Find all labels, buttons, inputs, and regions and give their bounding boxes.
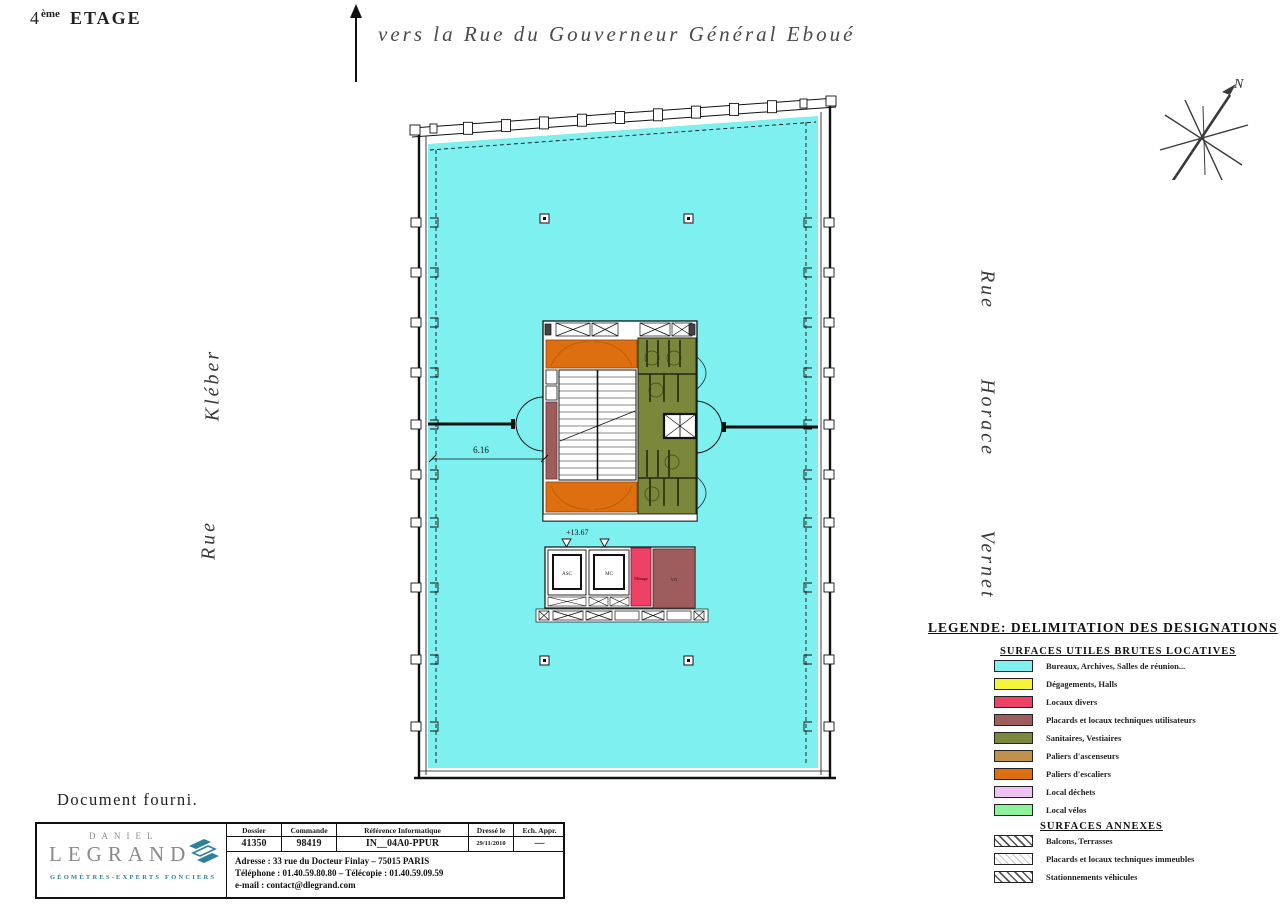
logo-line2: LEGRAND	[49, 842, 191, 867]
legend-swatch	[994, 732, 1033, 744]
floor-number: 4	[30, 8, 41, 28]
legend-item: Placards et locaux techniques immeubles	[994, 850, 1276, 868]
legend-label: Dégagements, Halls	[1046, 679, 1117, 689]
svg-text:VO: VO	[671, 577, 678, 582]
legend: LEGENDE: DELIMITATION DES DESIGNATIONS S…	[928, 620, 1276, 886]
technical-room: VO	[653, 549, 695, 608]
elevator-block: ASC MC Ménage VO	[536, 547, 708, 622]
legend-swatch	[994, 678, 1033, 690]
legend-title: LEGENDE: DELIMITATION DES DESIGNATIONS	[928, 620, 1276, 636]
core-bottom-strip	[543, 514, 697, 521]
legend-item: Locaux divers	[994, 693, 1276, 711]
legend-item: Stationnements véhicules	[994, 868, 1276, 886]
legend-group-annexes: SURFACES ANNEXES	[1040, 821, 1276, 832]
date-value: 29/11/2010	[469, 837, 514, 852]
page-title: 4èmeETAGE	[30, 8, 142, 29]
legend-item: Bureaux, Archives, Salles de réunion...	[994, 657, 1276, 675]
legend-item: Sanitaires, Vestiaires	[994, 729, 1276, 747]
title-block-data: Dossier Commande Référence Informatique …	[227, 824, 565, 897]
legend-label: Sanitaires, Vestiaires	[1046, 733, 1121, 743]
company-contact: Adresse : 33 rue du Docteur Finlay – 750…	[227, 852, 565, 891]
col-header: Ech. Appr.	[514, 824, 565, 837]
legend-item: Balcons, Terrasses	[994, 832, 1276, 850]
svg-text:ASC: ASC	[562, 572, 572, 577]
logo-line1: DANIEL	[89, 831, 159, 841]
dossier-value: 41350	[227, 837, 282, 852]
legend-swatch	[994, 750, 1033, 762]
phone-line: Téléphone : 01.40.59.80.80 – Télécopie :…	[235, 867, 565, 879]
sanitary-area	[638, 338, 706, 514]
staircase	[559, 370, 636, 480]
street-left-word: Rue	[198, 520, 221, 560]
svg-text:Ménage: Ménage	[634, 576, 648, 581]
col-header: Dossier	[227, 824, 282, 837]
cleaning-room: Ménage	[631, 548, 651, 606]
level-label: +13.67	[566, 528, 589, 537]
central-core	[543, 321, 706, 521]
elevator-shaft-mc: MC	[589, 550, 629, 595]
reference-value: IN__04A0-PPUR	[337, 837, 469, 852]
floor-suffix: ème	[41, 8, 60, 20]
legend-item: Local vélos	[994, 801, 1276, 819]
legend-swatch	[994, 660, 1033, 672]
logo-cube-icon	[185, 837, 221, 867]
legend-swatch	[994, 696, 1033, 708]
dimension-label: 6.16	[473, 445, 489, 455]
legend-label: Paliers d'ascenseurs	[1046, 751, 1119, 761]
elevator-shaft-asc: ASC	[548, 550, 586, 595]
street-right-name2: Vernet	[976, 530, 999, 599]
legend-swatch-hatched	[994, 853, 1033, 865]
address-line: Adresse : 33 rue du Docteur Finlay – 750…	[235, 855, 565, 867]
utility-cupboards	[546, 370, 557, 479]
legend-label: Balcons, Terrasses	[1046, 836, 1113, 846]
legend-swatch-hatched	[994, 835, 1033, 847]
legend-swatch	[994, 786, 1033, 798]
legend-group-locatives: SURFACES UTILES BRUTES LOCATIVES	[1000, 646, 1276, 657]
legend-item: Placards et locaux techniques utilisateu…	[994, 711, 1276, 729]
legend-label: Local déchets	[1046, 787, 1095, 797]
legend-swatch	[994, 714, 1033, 726]
legend-swatch-hatched	[994, 871, 1033, 883]
col-header: Commande	[282, 824, 337, 837]
svg-text:MC: MC	[605, 572, 613, 577]
reference-table: Dossier Commande Référence Informatique …	[227, 824, 565, 852]
street-right-word: Rue	[976, 270, 999, 310]
legend-swatch	[994, 768, 1033, 780]
legend-label: Bureaux, Archives, Salles de réunion...	[1046, 661, 1185, 671]
legend-label: Locaux divers	[1046, 697, 1097, 707]
floor-plan-drawing: 6.16 +13.67 ASC MC Ménage VO	[395, 85, 865, 795]
col-header: Dressé le	[469, 824, 514, 837]
elevator-vent-strip	[536, 609, 708, 622]
street-left-name: Kléber	[202, 349, 225, 421]
legend-item: Local déchets	[994, 783, 1276, 801]
legend-label: Placards et locaux techniques utilisateu…	[1046, 715, 1196, 725]
title-block: DANIEL LEGRAND GÉOMÈTRES-EXPERTS FONCIER…	[35, 822, 565, 899]
legend-label: Local vélos	[1046, 805, 1086, 815]
legend-item: Dégagements, Halls	[994, 675, 1276, 693]
compass-north-label: N	[1233, 77, 1244, 92]
email-line: e-mail : contact@dlegrand.com	[235, 879, 565, 891]
legend-item: Paliers d'ascenseurs	[994, 747, 1276, 765]
document-note: Document fourni.	[57, 790, 198, 810]
floor-plan-document: { "palette": { "cyan": "#7ef0f0", "yello…	[0, 0, 1280, 909]
legend-swatch	[994, 804, 1033, 816]
legend-label: Stationnements véhicules	[1046, 872, 1137, 882]
legend-label: Paliers d'escaliers	[1046, 769, 1111, 779]
col-header: Référence Informatique	[337, 824, 469, 837]
commande-value: 98419	[282, 837, 337, 852]
legend-item: Paliers d'escaliers	[994, 765, 1276, 783]
direction-street-label: vers la Rue du Gouverneur Général Eboué	[378, 22, 855, 47]
company-logo: DANIEL LEGRAND GÉOMÈTRES-EXPERTS FONCIER…	[37, 824, 227, 897]
street-right-name1: Horace	[976, 379, 999, 457]
scale-value: —	[514, 837, 565, 852]
legend-label: Placards et locaux techniques immeubles	[1046, 854, 1194, 864]
floor-word: ETAGE	[70, 8, 142, 28]
compass-rose-icon: N	[1150, 70, 1270, 180]
logo-subtitle: GÉOMÈTRES-EXPERTS FONCIERS	[50, 874, 216, 881]
up-arrow-line	[355, 14, 357, 82]
